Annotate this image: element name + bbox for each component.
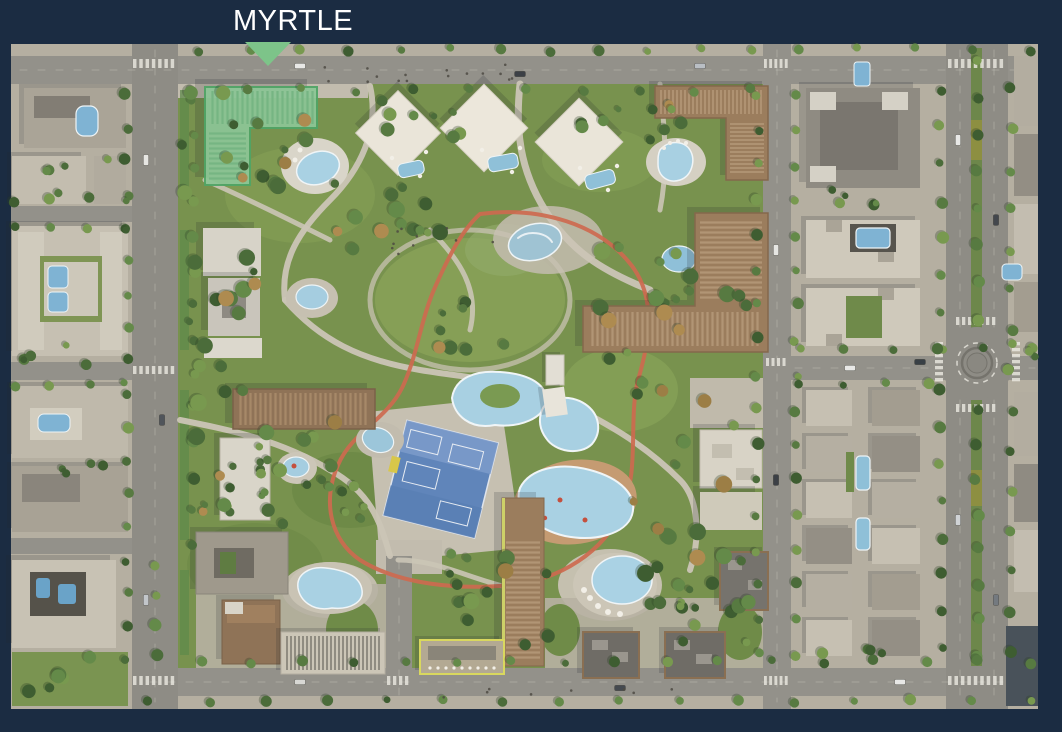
building-colonnade (281, 632, 385, 674)
road-left-3 (11, 538, 132, 554)
aerial-map[interactable] (0, 0, 1062, 732)
page-title: MYRTLE (233, 6, 353, 38)
splash-west (296, 285, 328, 309)
avenue-east-median (971, 48, 982, 330)
building-west-bar (233, 389, 375, 429)
road-left-1 (11, 206, 132, 222)
road-left-2 (11, 362, 132, 380)
detail-dots (428, 666, 495, 669)
crosswalk (948, 676, 1003, 685)
myrtle-masterplan-view: MYRTLE (0, 0, 1062, 732)
